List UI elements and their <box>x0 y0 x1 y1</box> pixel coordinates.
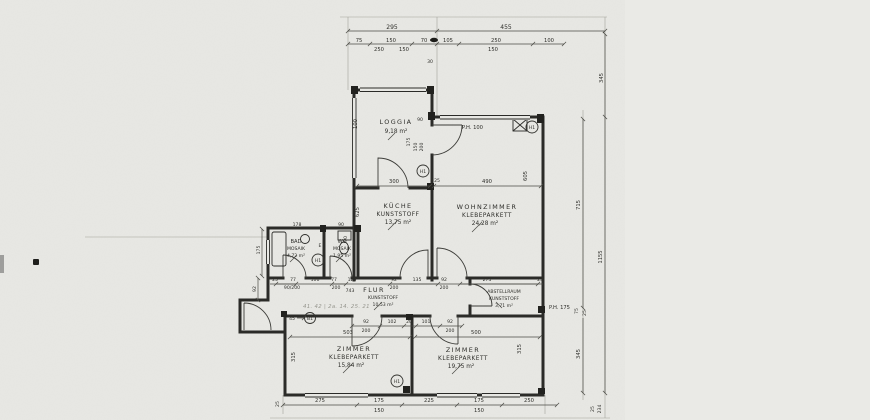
dim-label: 77 <box>331 277 337 283</box>
dim-label: 92 <box>252 286 258 292</box>
dim-label: 25 <box>582 310 588 316</box>
dim-label: 30 <box>427 59 433 65</box>
dim-label: 90 <box>417 117 423 123</box>
dim-label: 77 <box>290 277 296 283</box>
dim-label: 315 <box>291 352 297 362</box>
dim-label: 345 <box>599 73 605 83</box>
annotation-e: E <box>319 243 322 249</box>
dim-label: 70 <box>421 38 428 44</box>
room-area: 10,53 m² <box>373 302 394 308</box>
dim-label: 345 <box>576 349 582 359</box>
room-name: KÜCHE <box>383 201 412 210</box>
dim-label: 503 <box>343 330 353 336</box>
marker-text: H1 <box>420 169 426 175</box>
room-area: 24,28 m² <box>472 220 498 227</box>
scan-blob <box>33 259 39 265</box>
dim-label: 200 <box>446 328 455 334</box>
dim-label: 90/200 <box>284 285 300 291</box>
dim-label: 225 <box>424 398 434 404</box>
dim-label: 150 <box>413 143 419 152</box>
dim-label: 25 <box>434 178 440 184</box>
marker-text: H1 <box>529 125 535 131</box>
dim-label: 100 <box>353 119 359 129</box>
dim-label: 200 <box>390 285 399 291</box>
dim-label: 455 <box>500 24 512 31</box>
dim-label: 120 <box>348 277 357 283</box>
marker-text: H1 <box>315 258 321 264</box>
dim-label: 75 <box>356 38 363 44</box>
dim-label: 105 <box>443 38 453 44</box>
room-name: ZIMMER <box>446 346 480 354</box>
dim-label: 275 <box>315 398 325 404</box>
dim-label: 625 <box>355 207 361 217</box>
room-floor: MOSAIK <box>287 246 306 252</box>
dim-label: 1155 <box>598 250 604 263</box>
room-floor: KUNSTSTOFF <box>489 296 519 302</box>
ceiling-height-note: P.H. 175 <box>549 305 570 311</box>
dim-label: 45 <box>289 316 295 322</box>
room-floor: KUNSTSTOFF <box>377 212 420 218</box>
marker-text: B1 <box>307 316 313 322</box>
room-area: 15,84 m² <box>338 362 364 369</box>
dim-label: 178 <box>293 222 302 228</box>
dim-label: 200 <box>440 285 449 291</box>
dim-label: 200 <box>362 328 371 334</box>
dim-label: 295 <box>386 24 398 31</box>
dim-label: 250 <box>524 398 534 404</box>
dim-label: 25 <box>275 401 281 407</box>
dim-label: 300 <box>389 179 399 185</box>
ink-smudge <box>430 38 438 42</box>
dim-label: 92 <box>441 277 447 283</box>
dim-label: 275 <box>483 277 492 283</box>
dim-label: 25 <box>537 277 543 283</box>
dim-label: 75 <box>574 308 580 314</box>
room-name: FLUR <box>363 286 385 294</box>
dim-label: 92 <box>363 319 369 325</box>
dim-label: 102 <box>388 319 397 325</box>
dim-label: 715 <box>576 200 582 210</box>
dim-label: 175 <box>374 398 384 404</box>
dim-label: 490 <box>482 179 492 185</box>
room-name: WOHNZIMMER <box>457 203 518 211</box>
dim-label: 200 <box>332 285 341 291</box>
dim-label: 101 <box>422 319 431 325</box>
dim-label: 20 <box>406 319 412 325</box>
dim-label: 500 <box>471 330 481 336</box>
room-name: ZIMMER <box>337 345 371 353</box>
marker-text: H1 <box>394 379 400 385</box>
room-floor: KLEBEPARKETT <box>438 356 488 362</box>
dim-label: 92 <box>447 319 453 325</box>
dim-label: 605 <box>523 171 529 181</box>
floorplan-drawing: 295 455 75 150 70 105 250 100 250 150 15… <box>0 0 870 420</box>
pencil-note: 41. 42 | 2a. 14. 25. 21 <box>303 304 370 310</box>
dim-label: 150 <box>488 47 498 53</box>
dim-label: 175 <box>256 246 262 255</box>
dim-label: 150 <box>474 408 484 414</box>
paper-light-strip <box>625 0 870 420</box>
dim-label: 175 <box>474 398 484 404</box>
dim-label: 315 <box>517 344 523 354</box>
room-name: LOGGIA <box>380 118 413 126</box>
room-area: 19,75 m² <box>448 363 474 370</box>
dim-label: 150 <box>374 408 384 414</box>
dim-label: 92 <box>391 277 397 283</box>
floorplan-sheet: 295 455 75 150 70 105 250 100 250 150 15… <box>0 0 870 420</box>
room-name: ABSTELLRAUM <box>487 289 520 295</box>
dim-label: 135 <box>413 277 422 283</box>
room-floor: KLEBEPARKETT <box>462 213 512 219</box>
room-name: BAD <box>290 239 301 245</box>
room-floor: KLEBEPARKETT <box>329 355 379 361</box>
scan-edge-mark <box>0 255 4 273</box>
room-floor: MOSAIK <box>333 246 352 252</box>
room-area: 9,18 m² <box>385 128 408 135</box>
dim-label: 25 <box>272 277 278 283</box>
dim-label: 175 <box>406 138 412 147</box>
dim-label: 106 <box>311 277 320 283</box>
room-floor: KUNSTSTOFF <box>368 295 398 301</box>
dim-label: 90 <box>338 222 344 228</box>
dim-label: 250 <box>374 47 384 53</box>
dim-label: 100 <box>544 38 554 44</box>
dim-label: 234 <box>597 405 603 414</box>
dim-label: 150 <box>386 38 396 44</box>
dim-label: 25 <box>590 406 596 412</box>
room-name: WC <box>338 239 347 245</box>
dim-label: 743 <box>346 288 355 294</box>
dim-label: 200 <box>419 143 425 152</box>
dim-label: 150 <box>399 47 409 53</box>
ceiling-height-note: P.H. 100 <box>462 125 483 131</box>
dim-label: 250 <box>491 38 501 44</box>
